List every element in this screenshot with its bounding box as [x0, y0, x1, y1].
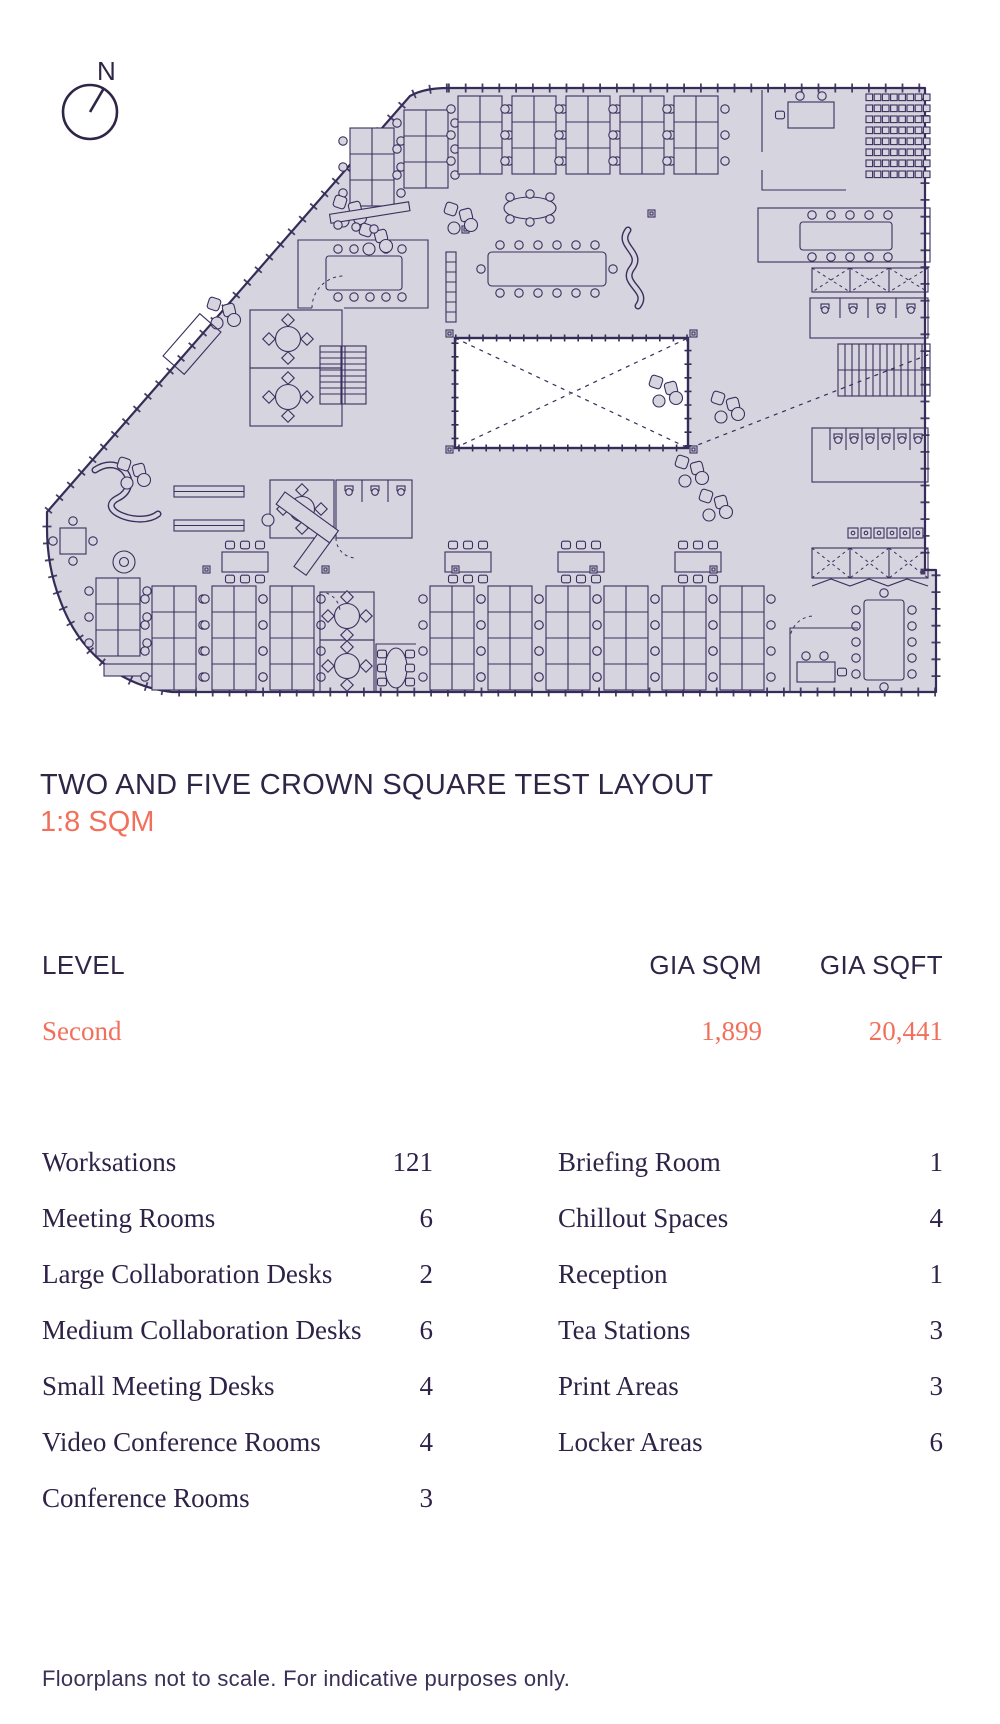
floor-plan: N [0, 0, 1000, 720]
amenity-row: Meeting Rooms 6 [42, 1204, 433, 1232]
amenity-value: 2 [420, 1260, 434, 1288]
amenities-left-column: Worksations 121 Meeting Rooms 6 Large Co… [42, 1148, 433, 1512]
amenity-label: Worksations [42, 1148, 176, 1176]
amenity-row: Conference Rooms 3 [42, 1484, 433, 1512]
workstation-banks-bottom [85, 578, 775, 690]
amenity-label: Large Collaboration Desks [42, 1260, 332, 1288]
footnote: Floorplans not to scale. For indicative … [42, 1666, 570, 1692]
north-compass: N [63, 56, 117, 139]
column-level: LEVEL [42, 950, 125, 981]
amenity-value: 3 [930, 1372, 944, 1400]
amenity-value: 3 [420, 1484, 434, 1512]
amenities-right-column: Briefing Room 1 Chillout Spaces 4 Recept… [558, 1148, 943, 1456]
amenity-label: Reception [558, 1260, 667, 1288]
amenity-value: 6 [420, 1204, 434, 1232]
area-table-header: LEVEL GIA SQM GIA SQFT [42, 950, 943, 980]
round-table-top [504, 190, 556, 226]
amenity-row: Tea Stations 3 [558, 1316, 943, 1344]
amenity-label: Small Meeting Desks [42, 1372, 274, 1400]
amenity-row: Chillout Spaces 4 [558, 1204, 943, 1232]
amenity-value: 1 [930, 1260, 944, 1288]
amenity-label: Conference Rooms [42, 1484, 250, 1512]
amenity-label: Chillout Spaces [558, 1204, 728, 1232]
amenity-row: Locker Areas 6 [558, 1428, 943, 1456]
amenity-row: Reception 1 [558, 1260, 943, 1288]
amenity-value: 3 [930, 1316, 944, 1344]
amenity-label: Locker Areas [558, 1428, 703, 1456]
area-table-row: Second 1,899 20,441 [42, 1016, 943, 1048]
page-title: TWO AND FIVE CROWN SQUARE TEST LAYOUT [40, 769, 713, 802]
amenity-value: 6 [930, 1428, 944, 1456]
amenity-row: Large Collaboration Desks 2 [42, 1260, 433, 1288]
compass-label: N [97, 56, 116, 86]
amenity-value: 4 [420, 1372, 434, 1400]
column-gia-sqm: GIA SQM [649, 950, 762, 981]
amenity-label: Meeting Rooms [42, 1204, 215, 1232]
amenity-row: Medium Collaboration Desks 6 [42, 1316, 433, 1344]
level-value: Second [42, 1016, 121, 1047]
amenity-row: Small Meeting Desks 4 [42, 1372, 433, 1400]
compass-needle [90, 88, 104, 112]
small-meeting-room-oval [376, 644, 416, 692]
amenity-value: 4 [420, 1428, 434, 1456]
amenity-label: Tea Stations [558, 1316, 690, 1344]
gia-sqft-value: 20,441 [869, 1016, 943, 1047]
amenity-value: 121 [393, 1148, 434, 1176]
amenity-row: Worksations 121 [42, 1148, 433, 1176]
amenity-row: Print Areas 3 [558, 1372, 943, 1400]
amenity-row: Video Conference Rooms 4 [42, 1428, 433, 1456]
amenity-value: 4 [930, 1204, 944, 1232]
amenity-label: Video Conference Rooms [42, 1428, 321, 1456]
amenity-label: Briefing Room [558, 1148, 721, 1176]
page-subtitle: 1:8 SQM [40, 806, 154, 839]
amenity-label: Print Areas [558, 1372, 679, 1400]
gia-sqm-value: 1,899 [701, 1016, 762, 1047]
amenity-value: 6 [420, 1316, 434, 1344]
column-gia-sqft: GIA SQFT [820, 950, 943, 981]
amenity-value: 1 [930, 1148, 944, 1176]
amenity-row: Briefing Room 1 [558, 1148, 943, 1176]
amenity-label: Medium Collaboration Desks [42, 1316, 361, 1344]
